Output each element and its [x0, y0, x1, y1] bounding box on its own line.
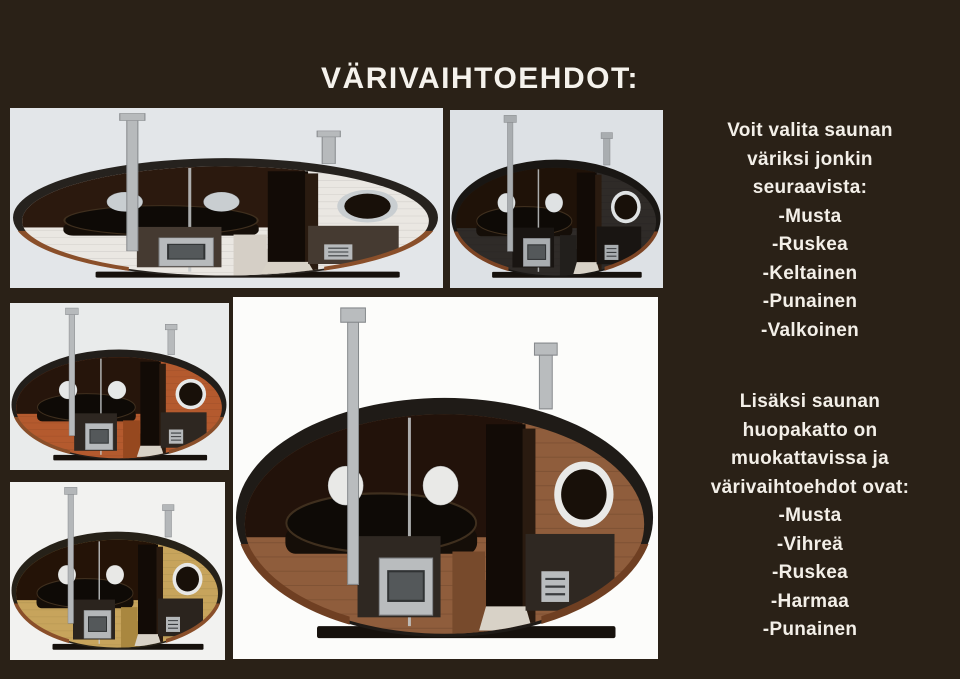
text-line: väriksi jonkin	[672, 146, 948, 175]
page-title: VÄRIVAIHTOEHDOT:	[0, 62, 960, 96]
sauna-image-white	[10, 108, 443, 288]
text-line: huopakatto on	[672, 417, 948, 446]
text-line: -Keltainen	[672, 260, 948, 289]
text-line: -Ruskea	[672, 559, 948, 588]
sauna-image-yellow	[10, 482, 225, 660]
text-line: seuraavista:	[672, 174, 948, 203]
text-line: muokattavissa ja	[672, 445, 948, 474]
text-line: -Vihreä	[672, 531, 948, 560]
sauna-panel-black	[450, 110, 663, 288]
text-line: Voit valita saunan	[672, 117, 948, 146]
sauna-image-black	[450, 110, 663, 288]
text-line: -Punainen	[672, 288, 948, 317]
text-line: värivaihtoehdot ovat:	[672, 474, 948, 503]
text-block-body-colors: Voit valita saunanväriksi jonkinseuraavi…	[672, 117, 948, 345]
text-line: -Musta	[672, 203, 948, 232]
text-line: -Valkoinen	[672, 317, 948, 346]
text-block-roof-colors: Lisäksi saunanhuopakatto onmuokattavissa…	[672, 388, 948, 645]
sauna-panel-white	[10, 108, 443, 288]
text-line: -Ruskea	[672, 231, 948, 260]
sauna-image-orange	[10, 303, 229, 470]
sauna-image-brown	[233, 297, 658, 659]
text-line: -Harmaa	[672, 588, 948, 617]
sauna-panel-yellow	[10, 482, 225, 660]
text-line: Lisäksi saunan	[672, 388, 948, 417]
text-line: -Musta	[672, 502, 948, 531]
text-line: -Punainen	[672, 616, 948, 645]
sauna-panel-brown	[233, 297, 658, 659]
flyer-page: { "page": { "title": "VÄRIVAIHTOEHDOT:",…	[0, 0, 960, 679]
sauna-panel-orange	[10, 303, 229, 470]
